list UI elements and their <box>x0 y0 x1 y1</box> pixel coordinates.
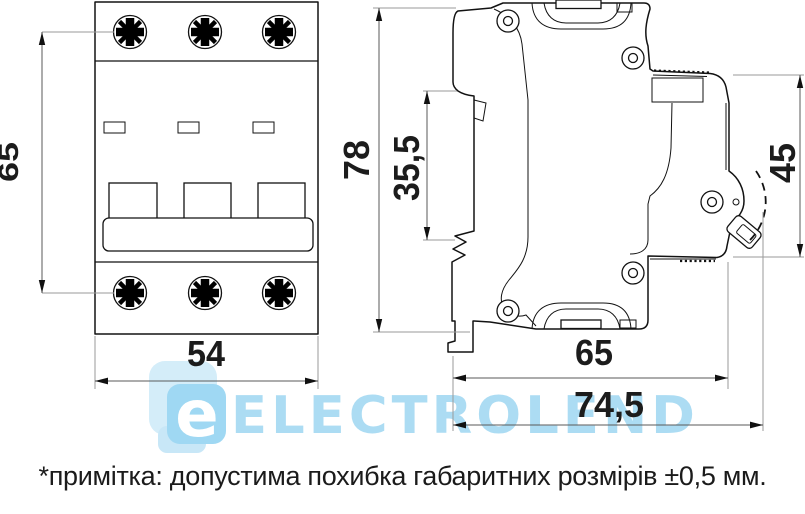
toggle-pivot <box>701 191 723 213</box>
dim-label-54: 54 <box>187 333 225 374</box>
logo-letter: e <box>175 378 218 452</box>
bottom-tab <box>561 320 601 329</box>
toggle-lever <box>258 183 305 220</box>
dim-label-front-65: 65 <box>0 142 24 182</box>
screw-icon <box>189 277 222 310</box>
side-view <box>448 0 766 352</box>
toggle-bar <box>103 218 313 251</box>
dim-front-54: 54 <box>95 333 318 389</box>
screw-icon <box>114 277 147 310</box>
dim-label-side-65: 65 <box>575 332 613 373</box>
top-tab <box>556 0 601 9</box>
front-view <box>95 2 318 334</box>
footnote-text: *примітка: допустима похибка габаритних … <box>0 461 805 492</box>
screw-icon <box>263 16 296 49</box>
toggle-lever <box>184 183 231 220</box>
technical-drawing: e ELECTROLEND <box>0 0 805 514</box>
side-body <box>448 3 744 352</box>
dim-label-35-5: 35,5 <box>386 135 427 201</box>
dim-din-35-5: 35,5 <box>386 91 457 240</box>
dim-label-74-5: 74,5 <box>574 384 644 425</box>
toggle-lever <box>109 183 157 220</box>
dim-label-78: 78 <box>336 140 377 180</box>
dim-label-45: 45 <box>762 143 803 183</box>
screw-icon <box>189 16 222 49</box>
screw-icon <box>263 277 296 310</box>
screw-icon <box>114 16 147 49</box>
